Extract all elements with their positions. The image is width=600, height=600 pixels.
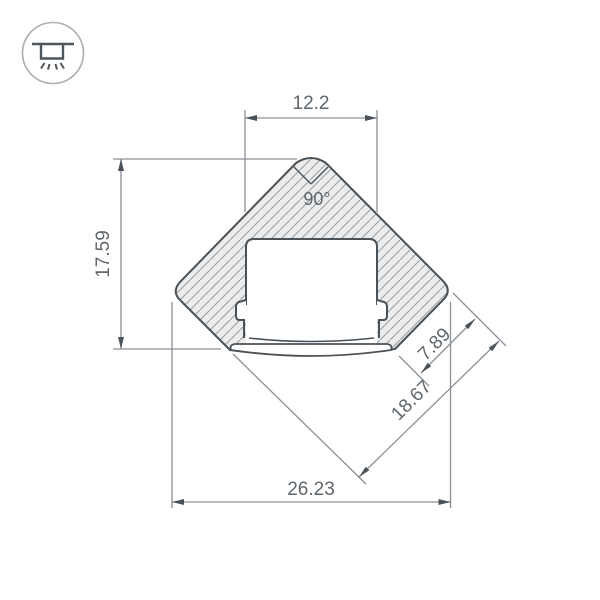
- page: 90° 12.2 17.59 7.89 18.67 26.2: [0, 0, 600, 600]
- dim-left-height-label: 17.59: [93, 230, 114, 278]
- dim-left-arrow-top: [118, 159, 124, 171]
- ceiling-light-icon: [23, 23, 84, 84]
- angle-label: 90°: [303, 189, 330, 209]
- dim-face-small-label: 7.89: [414, 324, 455, 365]
- dim-face-long-label: 18.67: [387, 376, 435, 424]
- dim-face-long: 18.67: [233, 341, 499, 484]
- dim-top-arrow-right: [365, 115, 377, 121]
- technical-drawing-canvas: 90° 12.2 17.59 7.89 18.67 26.2: [0, 0, 600, 600]
- profile-channel-cut: [246, 239, 377, 349]
- lens-body: [231, 344, 392, 356]
- dim-bottom-width-label: 26.23: [287, 479, 335, 500]
- icon-circle: [23, 23, 84, 84]
- dim-bottom-arrow-right: [439, 499, 451, 505]
- icon-light-rays: [41, 63, 64, 70]
- icon-lamp-box: [41, 44, 63, 59]
- dim-top-arrow-left: [245, 115, 257, 121]
- dim-top-width-label: 12.2: [293, 93, 330, 114]
- dim-face-long-extension-line: [233, 354, 366, 484]
- dim-bottom-arrow-left: [172, 499, 184, 505]
- dim-left-arrow-bottom: [118, 337, 124, 349]
